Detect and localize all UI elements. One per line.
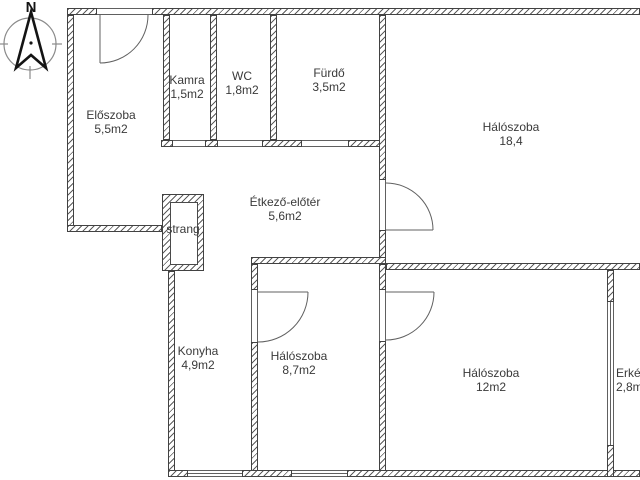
room-area: 2,8m2 (616, 380, 640, 394)
wall-halo87-halo12-lower (379, 341, 386, 477)
compass-circle (4, 18, 56, 70)
room-label-etkezo: Étkező-előtér 5,6m2 (215, 195, 355, 223)
room-area: 1,8m2 (212, 83, 272, 97)
wall-bottom-b (242, 470, 292, 477)
wall-bottom-c (347, 470, 640, 477)
wall-eloszoba-bottom (67, 225, 162, 232)
compass-center-dot (29, 41, 32, 44)
room-name: Hálószoba (451, 120, 571, 134)
room-area: 8,7m2 (239, 363, 359, 377)
kamra-door-opening (173, 140, 205, 147)
room-name: Erkély (616, 366, 640, 380)
wall-service-b (205, 140, 218, 147)
room-label-wc: WC 1,8m2 (212, 69, 272, 97)
room-label-halo-kozep: Hálószoba 8,7m2 (239, 349, 359, 377)
floorplan-canvas: N Előszoba 5,5m2 Kamra 1,5m2 WC 1,8m2 Fü… (0, 0, 640, 480)
erkely-window (607, 302, 614, 445)
room-area: 12m2 (431, 380, 551, 394)
wall-halo87-halo12-upper (379, 264, 386, 290)
room-name: Hálószoba (239, 349, 359, 363)
room-area: 18,4 (451, 134, 571, 148)
room-label-erkely: Erkély 2,8m2 (616, 366, 640, 394)
room-area: 5,6m2 (215, 209, 355, 223)
room-label-eloszoba: Előszoba 5,5m2 (61, 108, 161, 136)
wall-top-main (152, 8, 640, 15)
konyha-window (188, 470, 242, 477)
wall-service-a (161, 140, 173, 147)
wall-mid-left (251, 257, 386, 264)
room-label-konyha: Konyha 4,9m2 (148, 344, 248, 372)
room-name: Előszoba (61, 108, 161, 122)
room-name: Étkező-előtér (215, 195, 355, 209)
room-name: strang (160, 222, 206, 236)
wall-mid-right (386, 263, 640, 270)
wall-erkely-upper (607, 270, 614, 302)
room-name: Konyha (148, 344, 248, 358)
room-name: WC (212, 69, 272, 83)
halo-kozep-window (292, 470, 347, 477)
wall-top-left (67, 8, 97, 15)
room-label-halo-nagy: Hálószoba 18,4 (451, 120, 571, 148)
room-label-halo-also: Hálószoba 12m2 (431, 366, 551, 394)
compass-north-letter: N (26, 0, 37, 16)
room-name: Hálószoba (431, 366, 551, 380)
halo-kozep-door-opening (251, 290, 258, 342)
room-label-kamra: Kamra 1,5m2 (157, 73, 217, 101)
room-name: Fürdő (299, 66, 359, 80)
room-label-furdo: Fürdő 3,5m2 (299, 66, 359, 94)
north-arrow (16, 12, 46, 68)
entrance-door-opening (97, 8, 152, 15)
room-label-strang: strang (160, 222, 206, 236)
wall-erkely-lower (607, 445, 614, 477)
wall-service-c (262, 140, 302, 147)
entrance-door-arc (100, 15, 148, 63)
room-name: Kamra (157, 73, 217, 87)
halo-also-door-opening (379, 290, 386, 341)
halo-also-door-arc (386, 292, 434, 340)
room-area: 5,5m2 (61, 122, 161, 136)
compass: N (0, 0, 64, 84)
wall-konyha-left (168, 271, 175, 477)
halo-kozep-door-arc (258, 292, 308, 342)
wc-door-opening (218, 140, 262, 147)
furdo-door-opening (302, 140, 348, 147)
room-area: 1,5m2 (157, 87, 217, 101)
room-area: 3,5m2 (299, 80, 359, 94)
wall-bottom-a (168, 470, 188, 477)
halo-nagy-door-arc (386, 183, 433, 230)
wall-konyha-halo-upper (251, 264, 258, 290)
halo-nagy-door-opening (379, 180, 386, 230)
room-area: 4,9m2 (148, 358, 248, 372)
wall-etkezo-halo-upper (379, 15, 386, 180)
